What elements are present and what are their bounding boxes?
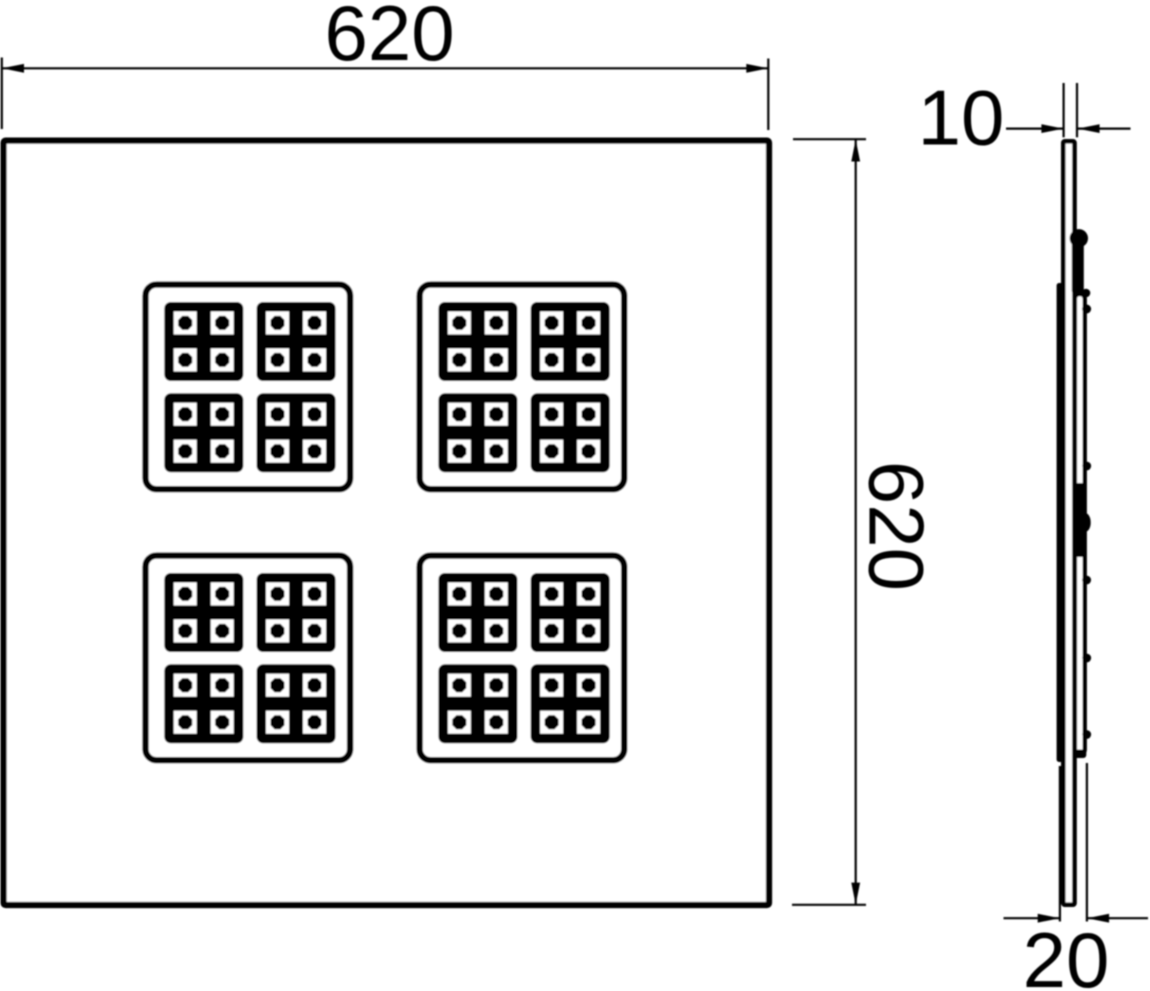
svg-text:620: 620 [853,461,941,591]
svg-text:620: 620 [325,0,455,77]
svg-text:10: 10 [918,74,1005,162]
svg-text:20: 20 [1023,916,1110,991]
